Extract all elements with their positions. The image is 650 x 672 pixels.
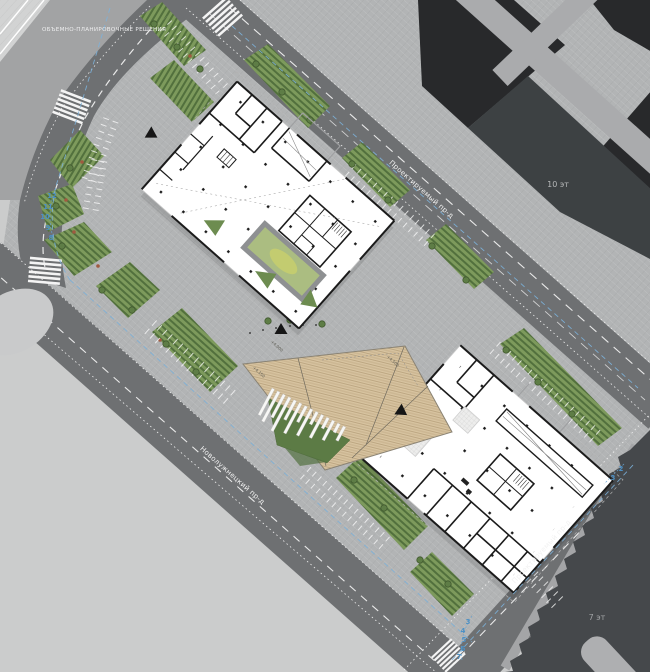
- axis-number: 11: [43, 203, 53, 211]
- plant: [96, 264, 100, 268]
- axis-number: 4: [461, 627, 466, 635]
- axis-number: 3: [466, 618, 471, 626]
- axis-number: 6: [461, 645, 466, 653]
- axis-number: 9: [46, 224, 51, 232]
- plant: [80, 160, 84, 164]
- axis-number: 12: [47, 192, 57, 200]
- floors-label-7: 7 эт: [589, 613, 606, 622]
- plant: [64, 198, 68, 202]
- floors-label-10: 10 эт: [547, 180, 569, 189]
- axis-number: 5: [462, 636, 467, 644]
- axis-number: 10: [40, 213, 50, 221]
- site-plan-canvas: ОБЪЕМНО-ПЛАНИРОВОЧНЫЕ РЕШЕНИЯ Проектируе…: [0, 0, 650, 672]
- axis-number: 2: [619, 465, 624, 473]
- page-title: ОБЪЕМНО-ПЛАНИРОВОЧНЫЕ РЕШЕНИЯ: [42, 27, 166, 33]
- axis-number: 7: [457, 653, 462, 661]
- site-plan-screenshot: ОБЪЕМНО-ПЛАНИРОВОЧНЫЕ РЕШЕНИЯ Проектируе…: [0, 0, 650, 672]
- axis-number: 8: [49, 234, 54, 242]
- plant: [72, 230, 76, 234]
- axis-number: 3: [611, 474, 616, 482]
